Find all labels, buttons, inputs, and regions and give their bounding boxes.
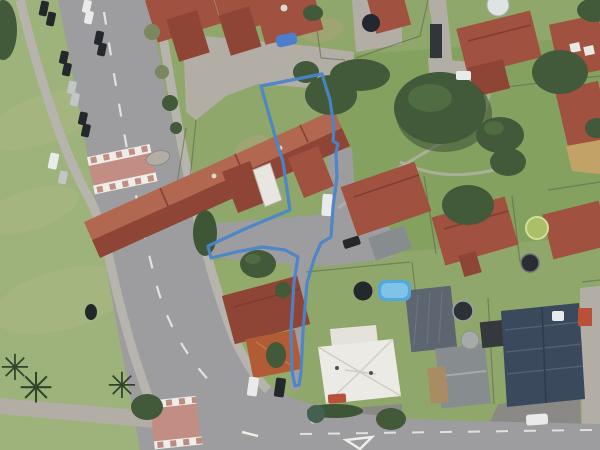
chimney — [212, 174, 217, 179]
trampoline — [354, 282, 373, 301]
roof-vent — [335, 366, 339, 370]
roadside-bush — [162, 95, 178, 111]
roof-vent — [281, 5, 288, 12]
swimming-pool-water — [381, 283, 408, 298]
tree — [303, 5, 323, 21]
bush — [275, 282, 291, 298]
aerial-map-canvas: ✳ ✳ ✳ — [0, 0, 600, 450]
tree-highlight — [408, 84, 452, 112]
dark-structure — [430, 24, 442, 58]
hedge — [193, 210, 217, 256]
red-trailer — [328, 393, 347, 403]
tree-highlight — [484, 121, 504, 135]
satellite-dish — [487, 0, 509, 16]
lawn-tree — [240, 250, 276, 278]
roadside-bush — [144, 24, 160, 40]
roadside-bush — [170, 122, 182, 134]
tree-highlight — [245, 254, 261, 264]
tree — [442, 185, 494, 225]
driveway-car — [526, 413, 549, 426]
flax-bush — [307, 405, 325, 423]
round-pool-green — [526, 217, 548, 239]
navy-house-car — [552, 311, 564, 321]
court-car — [456, 71, 471, 80]
tree — [532, 50, 588, 94]
tree — [376, 408, 406, 430]
tree — [330, 59, 390, 91]
water-tank — [461, 331, 479, 349]
dark-object-in-park — [85, 304, 97, 320]
palm-tree: ✳ — [18, 364, 53, 413]
palm-tree: ✳ — [107, 366, 137, 407]
roof-vent — [369, 371, 373, 375]
roadside-bush — [155, 65, 169, 79]
aerial-map[interactable]: ✳ ✳ ✳ — [0, 0, 600, 450]
dark-dish — [362, 14, 380, 32]
slate-house-roof — [405, 286, 457, 352]
far-right-red-structure — [578, 308, 592, 326]
bush — [266, 342, 286, 368]
water-tank — [453, 301, 473, 321]
trampoline — [521, 254, 539, 272]
timber-deck — [427, 366, 449, 404]
tree — [490, 148, 526, 176]
